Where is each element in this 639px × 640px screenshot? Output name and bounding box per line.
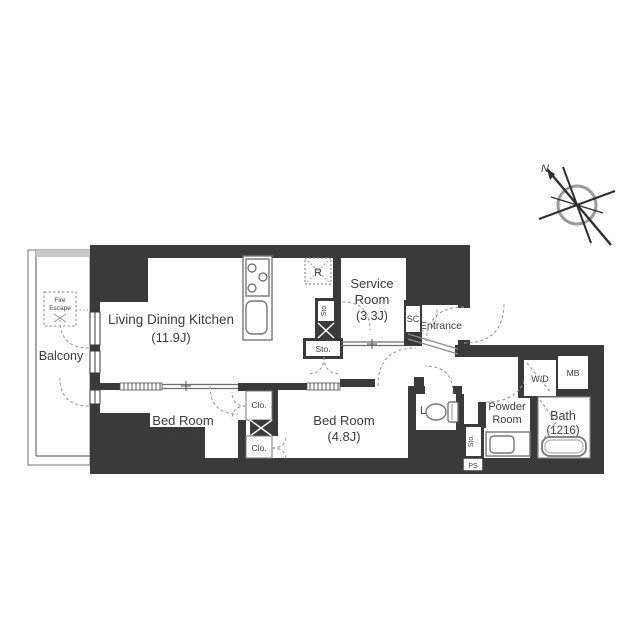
windows bbox=[90, 312, 100, 404]
storage-powder-label: Sto. bbox=[468, 435, 475, 448]
wall-closet-right bbox=[272, 383, 278, 436]
balcony-edge-strip bbox=[36, 250, 90, 257]
wall-lav-left bbox=[408, 386, 416, 430]
bath-size: (1216) bbox=[546, 425, 579, 437]
wall-closet-left bbox=[238, 420, 246, 460]
toilet-bowl bbox=[426, 404, 446, 420]
ldk-size: (11.9J) bbox=[151, 330, 191, 345]
floor-plan: N Balcony Fire Escape bbox=[0, 0, 639, 640]
wall-bed1-band bbox=[100, 383, 120, 390]
lavatory bbox=[425, 366, 458, 422]
bedroom1-label: Bed Room bbox=[152, 413, 213, 428]
window bbox=[90, 312, 100, 345]
service-room-label-2: Room bbox=[355, 292, 390, 307]
wall-tick bbox=[181, 381, 191, 391]
bedroom2-size: (4.8J) bbox=[327, 429, 360, 444]
wall-left-b bbox=[90, 345, 100, 351]
balcony: Balcony Fire Escape bbox=[28, 250, 90, 465]
wall-top-left-block bbox=[90, 245, 148, 302]
service-room-size: (3.3J) bbox=[356, 309, 388, 323]
wall-lav-top-b bbox=[453, 386, 462, 394]
entrance-door-arc-exterior bbox=[464, 303, 504, 343]
bedroom2-door-arc bbox=[378, 348, 416, 386]
bedroom1-door-arc bbox=[210, 386, 238, 414]
ldk-label: Living Dining Kitchen bbox=[108, 312, 234, 327]
bedroom1-size: (5.0J) bbox=[166, 429, 199, 444]
wall-left-a bbox=[90, 302, 100, 312]
wall-powder-left bbox=[478, 402, 486, 428]
powder-room-label-1: Powder bbox=[488, 401, 526, 413]
shoe-closet-label: SC bbox=[407, 314, 420, 324]
storage-small-label: Sto bbox=[321, 306, 328, 317]
compass-rose: N bbox=[539, 163, 615, 245]
storage-door-arcs bbox=[307, 357, 341, 374]
wall-service-left bbox=[333, 258, 341, 302]
wall-lav-top-a bbox=[416, 386, 425, 394]
powder-room bbox=[486, 432, 530, 456]
wall-bottom bbox=[90, 458, 604, 474]
washer-dryer-label: W/D bbox=[531, 374, 549, 384]
kitchen-sink bbox=[246, 301, 267, 334]
closet-lower-door-arcs bbox=[272, 436, 286, 460]
refrigerator-label: R bbox=[314, 267, 322, 279]
wall-bed2-band2 bbox=[340, 379, 375, 387]
fire-escape-label-1: Fire bbox=[54, 297, 66, 304]
pipe-space-label: PS bbox=[468, 463, 478, 470]
closet-lower-label: Clo. bbox=[251, 443, 266, 453]
compass-north-label: N bbox=[541, 163, 549, 175]
service-room-label-1: Service bbox=[350, 276, 393, 291]
thin-wall-bed1 bbox=[162, 385, 238, 389]
bedroom2-label: Bed Room bbox=[313, 413, 374, 428]
closet-upper-label: Clo. bbox=[251, 400, 266, 410]
window bbox=[90, 390, 100, 404]
wall-entrance-block bbox=[406, 255, 470, 305]
storage-closet-label: Sto. bbox=[315, 344, 330, 354]
wall-lav-mass bbox=[408, 430, 466, 458]
closet-upper-door-arcs bbox=[232, 392, 246, 420]
balcony-label: Balcony bbox=[39, 349, 84, 363]
bath-label: Bath bbox=[550, 409, 576, 423]
fire-escape-label-2: Escape bbox=[49, 305, 71, 312]
wall-tick bbox=[367, 339, 377, 349]
window bbox=[90, 351, 100, 373]
entrance-label: Entrance bbox=[420, 320, 462, 332]
meter-box-label: MB bbox=[567, 368, 580, 378]
lavatory-door-arc bbox=[425, 366, 453, 394]
wash-basin bbox=[490, 436, 514, 453]
balcony-door-arc bbox=[60, 378, 89, 406]
refrigerator-space: R bbox=[305, 258, 331, 284]
toilet-tank bbox=[448, 402, 458, 422]
wall-bed2-band bbox=[278, 383, 307, 390]
bathroom: Bath (1216) bbox=[538, 397, 590, 458]
powder-room-label-2: Room bbox=[492, 414, 521, 426]
hatched-section bbox=[307, 383, 340, 390]
